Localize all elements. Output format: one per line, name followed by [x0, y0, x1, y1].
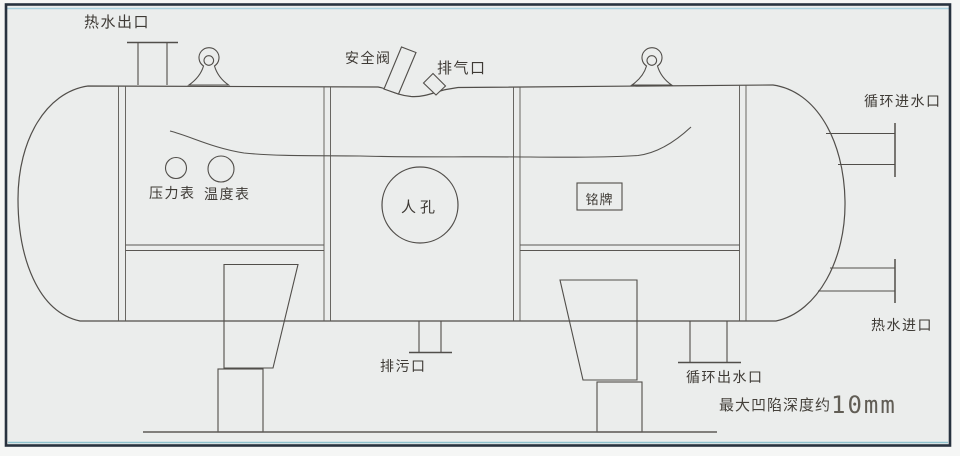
manhole-label: 人孔: [382, 196, 458, 217]
hot-water-outlet-label: 热水出口: [84, 11, 150, 32]
nameplate-label: 铭牌: [577, 189, 622, 208]
circulation-inlet-label: 循环进水口: [864, 91, 942, 111]
drawing-sheet: 热水出口 安全阀 排气口 循环进水口 压力表 温度表 人孔 铭牌 排污口 循环出…: [0, 0, 960, 456]
dent-depth-note-text: 最大凹陷深度约: [719, 394, 831, 415]
vent-port-label: 排气口: [437, 57, 487, 78]
pressure-gauge-label: 压力表: [149, 183, 196, 203]
drain-port-label: 排污口: [380, 356, 427, 376]
temperature-gauge-label: 温度表: [204, 184, 251, 204]
circulation-outlet-label: 循环出水口: [686, 367, 764, 387]
dent-depth-note: 最大凹陷深度约 10mm: [719, 394, 897, 415]
lug-hole: [204, 56, 214, 66]
safety-valve-label: 安全阀: [345, 48, 392, 68]
dent-depth-note-value: 10mm: [831, 395, 897, 415]
lug-hole: [647, 56, 657, 66]
hot-water-inlet-label: 热水进口: [871, 315, 933, 335]
